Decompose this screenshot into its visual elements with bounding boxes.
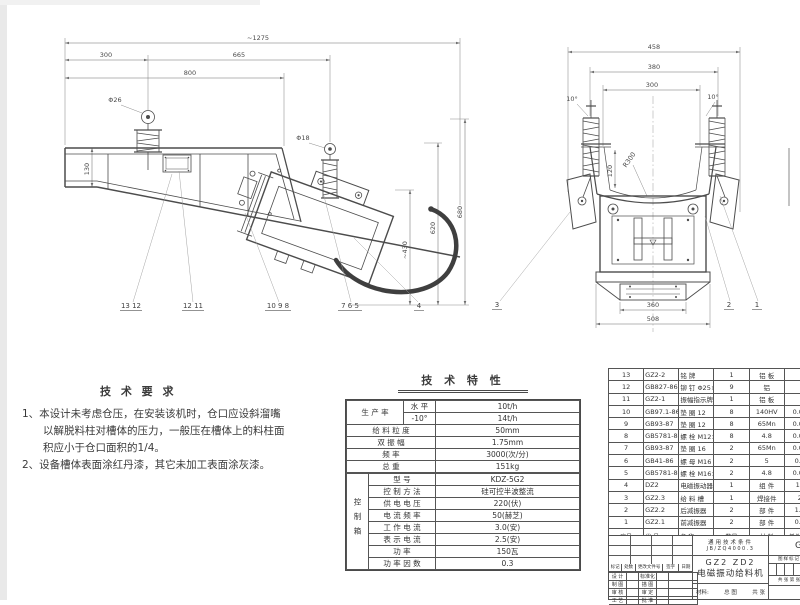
sign-blank	[627, 597, 639, 605]
control-key: 工 作 电 流	[369, 521, 436, 533]
feed-trough-side	[65, 148, 460, 257]
parts-cell: 振幅指示牌	[679, 393, 714, 405]
parts-cell: GB827-86	[644, 381, 679, 393]
parts-cell: 8	[714, 418, 749, 430]
sign-label: 标准化	[639, 573, 657, 581]
parts-cell: 140HV	[749, 405, 784, 417]
parts-row: 4DZ2电磁振动器1组 件124	[609, 479, 800, 491]
parts-rows: 13GZ2-2铭 牌1铝 板-12GB827-86铆 钉 Φ25×59铝-11G…	[609, 369, 800, 529]
requirement-line: 以解脱料柱对槽体的压力，一般压在槽体上的料柱面	[22, 423, 352, 440]
parts-cell: 螺 母 M16	[679, 455, 714, 467]
dim-height-2: 620	[429, 222, 437, 234]
parts-cell: GB5781-82	[644, 467, 679, 479]
callout-4: 4	[417, 302, 422, 310]
right-hanger-lug	[710, 174, 739, 229]
spec-value: 50mm	[436, 424, 580, 436]
sign-blank	[627, 589, 639, 597]
parts-cell: 2	[714, 516, 749, 528]
parts-row: 7GB93-87垫 圈 16265Mn0.007	[609, 442, 800, 454]
parts-cell: DZ2	[644, 479, 679, 491]
parts-cell: 8	[609, 430, 644, 442]
pages-label: 共 张	[752, 588, 765, 596]
parts-cell: 焊接件	[749, 491, 784, 503]
product-name: 电磁振动给料机	[693, 567, 768, 579]
parts-header-name: 名 称	[679, 528, 714, 535]
parts-cell: GZ2.1	[644, 516, 679, 528]
callout-2: 2	[727, 301, 731, 309]
sign-label: 批 准	[639, 597, 657, 605]
front-view: 458 380 300 120 R300 10° 10° 360 508	[492, 43, 789, 332]
parts-cell: 组 件	[749, 479, 784, 491]
mark-boxes	[769, 564, 800, 576]
parts-cell: 垫 圈 12	[679, 405, 714, 417]
control-value: 0.3	[436, 557, 580, 569]
sheet-label: 共 张 第 张	[769, 576, 800, 586]
parts-cell: 铝	[749, 381, 784, 393]
control-key: 功 率 因 数	[369, 557, 436, 569]
dim-front-overhang: 300	[100, 51, 112, 59]
engineering-drawing-canvas: ~1275 300 665 800 130 ~430 620 680 Φ26 Φ…	[0, 0, 800, 365]
rev-col: 签字	[663, 564, 678, 571]
front-dimension-labels: 458 380 300 120 R300 10° 10° 360 508	[566, 43, 719, 323]
dim-bottom-radius: R300	[621, 151, 637, 169]
prod-cond: 水 平	[404, 401, 436, 413]
parts-cell: 8	[714, 405, 749, 417]
tech-characteristics-table-control: 控制箱 型 号 KDZ-5G2 控 制 方 法 硅可控半波整流 供 电 电 压 …	[346, 473, 580, 570]
parts-cell: 部 件	[749, 504, 784, 516]
parts-cell: 0.93	[784, 516, 800, 528]
callout-13-12: 13 12	[121, 302, 141, 310]
front-angle-leaders	[577, 102, 715, 196]
parts-cell: 螺 栓 M16×35	[679, 467, 714, 479]
dim-trough-length: 800	[184, 69, 196, 77]
parts-cell: 12	[609, 381, 644, 393]
sign-blank	[627, 581, 639, 589]
parts-row: 13GZ2-2铭 牌1铝 板-	[609, 369, 800, 381]
parts-row: 3GZ2.3给 料 槽1焊接件22	[609, 491, 800, 503]
parts-cell: 铝 板	[749, 393, 784, 405]
tech-characteristics-table-top: 生 产 率 水 平 10t/h -10° 14t/h 给 料 粒 度 50mm …	[346, 400, 580, 473]
drawing-number-partial: GZ	[769, 536, 800, 556]
parts-cell: 给 料 槽	[679, 491, 714, 503]
dim-trough-height: 130	[83, 163, 91, 175]
parts-cell: 0.007	[784, 442, 800, 454]
side-dimension-labels: ~1275 300 665 800 130 ~430 620 680 Φ26 Φ…	[83, 34, 464, 259]
sign-blank	[627, 573, 639, 581]
parts-cell: 6	[609, 455, 644, 467]
parts-cell: 1	[714, 479, 749, 491]
parts-cell: GZ2.2	[644, 504, 679, 516]
control-value: 220(伏)	[436, 497, 580, 509]
parts-row: 8GB5781-86螺 栓 M12×2584.80.011	[609, 430, 800, 442]
side-callouts: 13 12 12 11 10 9 8 7 6 5 4	[121, 302, 422, 310]
control-key: 电 流 频 率	[369, 509, 436, 521]
parts-cell: 2	[714, 442, 749, 454]
parts-list: 13GZ2-2铭 牌1铝 板-12GB827-86铆 钉 Φ25×59铝-11G…	[608, 368, 800, 535]
parts-cell: 2	[714, 504, 749, 516]
dim-rear-ring: Φ18	[296, 134, 309, 142]
parts-header-material: 材 料	[749, 528, 784, 535]
parts-cell: 铆 钉 Φ25×5	[679, 381, 714, 393]
parts-cell: 13	[609, 369, 644, 381]
parts-cell: GZ2.3	[644, 491, 679, 503]
control-key: 控 制 方 法	[369, 485, 436, 497]
parts-cell: 电磁振动器	[679, 479, 714, 491]
parts-cell: 2	[609, 504, 644, 516]
sign-blank	[657, 581, 669, 589]
callout-3: 3	[495, 301, 499, 309]
parts-cell: 0.002	[784, 418, 800, 430]
parts-row: 9GB93-87垫 圈 12865Mn0.002	[609, 418, 800, 430]
dim-total-length: ~1275	[247, 34, 269, 42]
material-label: 材料:	[696, 588, 709, 596]
parts-cell: 5	[609, 467, 644, 479]
spec-value: 3000(次/分)	[436, 448, 580, 460]
dim-height-1: ~430	[401, 241, 409, 259]
rear-hanger-spring	[321, 144, 339, 199]
parts-cell: 前减振器	[679, 516, 714, 528]
control-key: 表 示 电 流	[369, 533, 436, 545]
control-box-label: 控制箱	[347, 473, 369, 569]
parts-cell: 1	[609, 516, 644, 528]
title-block-right: GZ 图样标记 共 张 第 张	[769, 536, 800, 599]
parts-cell: 4	[609, 479, 644, 491]
revision-header: 标记 处数 更改文件号 签字 日期	[609, 564, 693, 572]
dim-left-angle: 10°	[566, 95, 578, 103]
parts-cell: 垫 圈 12	[679, 418, 714, 430]
requirement-line: 1、本设计未考虑仓压，在安装该机时，仓口应设斜溜嘴	[22, 406, 352, 423]
dim-hanger-span: 665	[233, 51, 245, 59]
parts-cell: 0.065	[784, 467, 800, 479]
control-key: 功 率	[369, 545, 436, 557]
rev-col: 日期	[679, 564, 693, 571]
parts-header-code: 代 号	[644, 528, 679, 535]
signature-table: 设 计 标准化 制 图 描 图 审 核 审 定 工 艺	[609, 572, 698, 605]
general-note-line2: JB/ZQ4000.3	[693, 546, 768, 552]
parts-cell: 0.011	[784, 430, 800, 442]
rev-col: 标记	[609, 564, 622, 571]
parts-header-qty: 数量	[714, 528, 749, 535]
prod-value: 10t/h	[436, 401, 580, 413]
parts-cell: 1	[714, 393, 749, 405]
control-key: 型 号	[369, 473, 436, 485]
parts-cell: 1	[714, 369, 749, 381]
tech-characteristics-section: 技 术 特 性 生 产 率 水 平 10t/h -10° 14t/h 给 料 粒…	[345, 372, 581, 571]
sign-blank	[657, 597, 669, 605]
dim-right-angle: 10°	[707, 93, 719, 101]
front-hanger-spring	[134, 111, 162, 171]
parts-cell: 铭 牌	[679, 369, 714, 381]
spec-value: 151kg	[436, 460, 580, 472]
technical-requirements: 技 术 要 求 1、本设计未考虑仓压，在安装该机时，仓口应设斜溜嘴 以解脱料柱对…	[22, 383, 352, 474]
parts-cell: -	[784, 369, 800, 381]
material-row: 材料: 总 图 共 张	[693, 584, 768, 599]
parts-cell: 10	[609, 405, 644, 417]
spec-label: 总 重	[347, 460, 436, 472]
parts-cell: GB93-87	[644, 418, 679, 430]
revision-signature-area: 标记 处数 更改文件号 签字 日期 设 计 标准化 制 图 描 图 审 核	[609, 536, 693, 599]
requirement-line: 积应小于仓口面积的1/4。	[22, 440, 352, 457]
side-view: ~1275 300 665 800 130 ~430 620 680 Φ26 Φ…	[65, 34, 469, 311]
parts-cell: 部 件	[749, 516, 784, 528]
parts-cell: 螺 栓 M12×25	[679, 430, 714, 442]
parts-row: 5GB5781-82螺 栓 M16×3524.80.065	[609, 467, 800, 479]
dim-overall-width: 458	[648, 43, 660, 51]
sign-label: 工 艺	[609, 597, 627, 605]
sign-label: 设 计	[609, 573, 627, 581]
title-block-center: 通用技术条件 JB/ZQ4000.3 GZ2 ZD2 电磁振动给料机 材料: 总…	[693, 536, 769, 599]
parts-cell: 后减振器	[679, 504, 714, 516]
technical-requirements-title: 技 术 要 求	[22, 383, 352, 400]
general-note-line1: 通用技术条件	[693, 538, 768, 546]
parts-cell: 65Mn	[749, 442, 784, 454]
parts-cell: 0.34	[784, 455, 800, 467]
sign-label: 审 定	[639, 589, 657, 597]
dim-front-ring: Φ26	[108, 96, 121, 104]
view-label: 总 图	[724, 588, 737, 596]
parts-cell: -	[784, 381, 800, 393]
sign-blank	[657, 589, 669, 597]
control-value: 2.5(安)	[436, 533, 580, 545]
parts-row: 1GZ2.1前减振器2部 件0.93	[609, 516, 800, 528]
title-block: 标记 处数 更改文件号 签字 日期 设 计 标准化 制 图 描 图 审 核	[608, 535, 800, 600]
dim-spring-span: 380	[648, 63, 660, 71]
parts-cell: GB97.1-86	[644, 405, 679, 417]
parts-cell: 3	[609, 491, 644, 503]
parts-cell: 0.003	[784, 405, 800, 417]
parts-cell: 1	[714, 491, 749, 503]
parts-cell: 9	[609, 418, 644, 430]
callout-12-11: 12 11	[183, 302, 203, 310]
parts-cell: 铝 板	[749, 369, 784, 381]
parts-cell: GZ2-2	[644, 369, 679, 381]
parts-cell: 11	[609, 393, 644, 405]
front-callout-leaders	[500, 196, 758, 301]
control-value: 50(赫芝)	[436, 509, 580, 521]
parts-cell: GZ2-1	[644, 393, 679, 405]
general-note: 通用技术条件 JB/ZQ4000.3	[693, 536, 768, 556]
parts-row: 10GB97.1-86垫 圈 128140HV0.003	[609, 405, 800, 417]
callout-10-9-8: 10 9 8	[267, 302, 289, 310]
sign-blank	[657, 573, 669, 581]
sign-label: 描 图	[639, 581, 657, 589]
parts-cell: 124	[784, 479, 800, 491]
parts-header-row: 序号 代 号 名 称 数量 材 料 单件 重量	[609, 528, 800, 535]
parts-header-seq: 序号	[609, 528, 644, 535]
parts-cell: 9	[714, 381, 749, 393]
control-value: 硅可控半波整流	[436, 485, 580, 497]
parts-header-weight: 单件 重量	[784, 528, 800, 535]
front-callouts: 3 2 1	[495, 301, 759, 309]
rev-col: 更改文件号	[636, 564, 664, 571]
product-title-cell: GZ2 ZD2 电磁振动给料机	[693, 556, 768, 584]
spec-value: 1.75mm	[436, 436, 580, 448]
parts-row: 2GZ2.2后减振器2部 件1.52	[609, 504, 800, 516]
parts-cell: GB5781-86	[644, 430, 679, 442]
parts-cell: 2	[714, 455, 749, 467]
sign-label: 制 图	[609, 581, 627, 589]
mark-label: 图样标记	[769, 556, 800, 564]
parts-cell: 2	[714, 467, 749, 479]
prod-value: 14t/h	[436, 413, 580, 425]
callout-1: 1	[755, 301, 759, 309]
front-right-spring	[709, 100, 725, 197]
control-value: 150瓦	[436, 545, 580, 557]
spec-label: 双 振 幅	[347, 436, 436, 448]
parts-list-table: 13GZ2-2铭 牌1铝 板-12GB827-86铆 钉 Φ25×59铝-11G…	[608, 368, 800, 535]
spec-label: 给 料 粒 度	[347, 424, 436, 436]
parts-cell: 1.52	[784, 504, 800, 516]
parts-cell: -	[784, 393, 800, 405]
left-hanger-lug	[567, 174, 596, 229]
parts-row: 6GB41-86螺 母 M16250.34	[609, 455, 800, 467]
rev-col: 处数	[622, 564, 635, 571]
side-callout-leaders	[133, 171, 418, 302]
tech-characteristics-title: 技 术 特 性	[398, 372, 528, 393]
callout-7-6-5: 7 6 5	[341, 302, 359, 310]
parts-cell: 22	[784, 491, 800, 503]
parts-row: 12GB827-86铆 钉 Φ25×59铝-	[609, 381, 800, 393]
parts-cell: 8	[714, 430, 749, 442]
requirement-line: 2、设备槽体表面涂红丹漆，其它未加工表面涂灰漆。	[22, 457, 352, 474]
control-value: 3.0(安)	[436, 521, 580, 533]
model-number: GZ2 ZD2	[693, 558, 768, 567]
sign-label: 审 核	[609, 589, 627, 597]
spec-label: 频 率	[347, 448, 436, 460]
parts-cell: 4.8	[749, 467, 784, 479]
nameplate	[163, 155, 191, 172]
parts-cell: 65Mn	[749, 418, 784, 430]
control-key: 供 电 电 压	[369, 497, 436, 509]
parts-cell: GB41-86	[644, 455, 679, 467]
dim-height-3: 680	[456, 206, 464, 218]
parts-cell: 5	[749, 455, 784, 467]
prod-cond: -10°	[404, 413, 436, 425]
parts-cell: 4.8	[749, 430, 784, 442]
parts-row: 11GZ2-1振幅指示牌1铝 板-	[609, 393, 800, 405]
prod-rate-label: 生 产 率	[347, 401, 404, 425]
parts-cell: 7	[609, 442, 644, 454]
parts-cell: GB93-87	[644, 442, 679, 454]
parts-cell: 垫 圈 16	[679, 442, 714, 454]
control-value: KDZ-5G2	[436, 473, 580, 485]
dim-trough-width: 300	[646, 81, 658, 89]
